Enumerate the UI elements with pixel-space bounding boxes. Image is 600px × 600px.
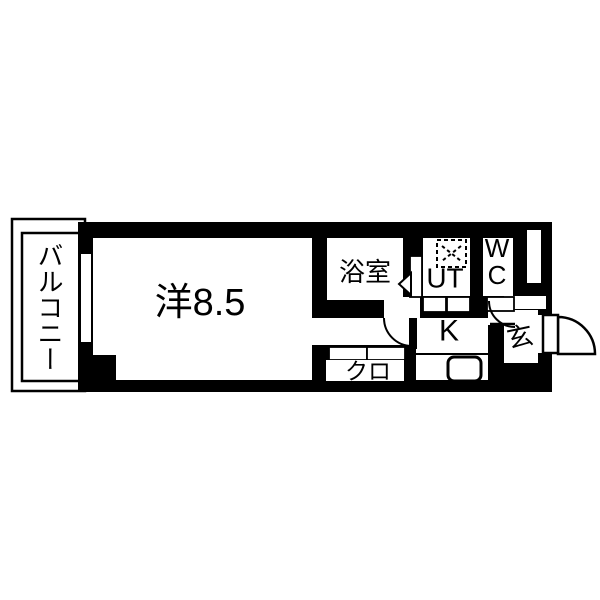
wall-ut-wc-divider — [470, 222, 483, 297]
closet-label: クロ — [345, 358, 391, 384]
wall-bathroom-south — [312, 300, 384, 318]
wall-kitchen-entrance-stub — [488, 325, 504, 392]
room-door-icon — [384, 318, 417, 349]
ut-sliding-door-panel-right — [447, 297, 470, 312]
floor-plan-drawing: バルコニー 洋8.5 浴室 UT W C K クロ 玄 — [0, 0, 600, 600]
utility-label: UT — [426, 263, 463, 294]
window-icon — [80, 253, 92, 343]
balcony-label: バルコニー — [34, 242, 64, 372]
bathroom-label: 浴室 — [339, 257, 391, 287]
entrance-door-swing — [558, 317, 595, 354]
toilet-label-c: C — [488, 260, 507, 290]
floor-plan-page: バルコニー 洋8.5 浴室 UT W C K クロ 玄 — [0, 0, 600, 600]
kitchen-counter — [416, 354, 488, 381]
kitchen-sink-icon — [448, 357, 481, 381]
room-door-arc — [384, 318, 412, 346]
entrance-door-leaf — [543, 315, 558, 353]
kitchen-label: K — [439, 315, 459, 348]
pipe-space-slot — [527, 230, 541, 283]
toilet-label-w: W — [485, 233, 510, 263]
entrance-door-icon — [543, 315, 595, 354]
main-room-label: 洋8.5 — [155, 282, 246, 324]
entrance-label: 玄 — [504, 320, 536, 355]
ut-sliding-door-panel-left — [423, 297, 446, 312]
bathroom-door-icon — [399, 256, 422, 297]
room-door-leaf — [409, 318, 417, 349]
wall-entrance-bottom — [504, 363, 552, 392]
wall-left-step — [92, 355, 116, 382]
